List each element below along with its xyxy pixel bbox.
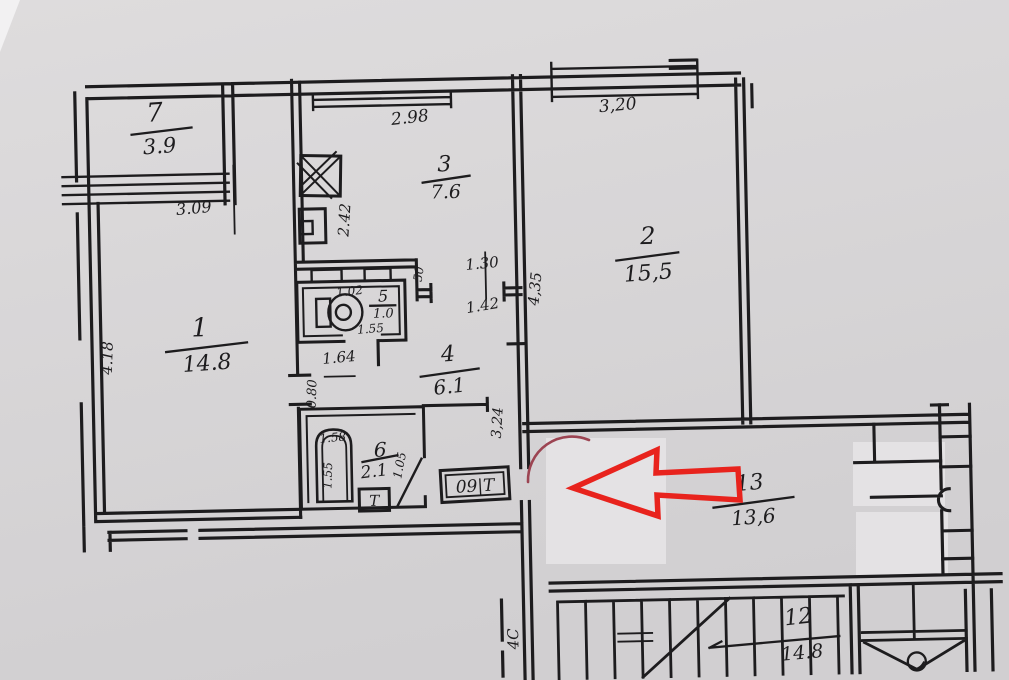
- scanned-floor-plan: Т 09|Т 7 3.9 3.09 1 14.8 4.18 3 7.6 2.98…: [0, 0, 1009, 680]
- room-hall-number: 4: [439, 342, 456, 368]
- dim-balcony-width: 3.09: [175, 197, 212, 219]
- dim-tub-length: 1.58: [319, 429, 347, 445]
- room-hall-area: 6.1: [432, 373, 466, 400]
- meter-box-label: 09|Т: [455, 475, 496, 497]
- floor-plan-canvas: Т 09|Т 7 3.9 3.09 1 14.8 4.18 3 7.6 2.98…: [0, 0, 1009, 680]
- room-kitchen-area: 7.6: [431, 181, 462, 204]
- room-living-area: 14.8: [182, 349, 233, 378]
- room-wc-area: 1.0: [373, 306, 394, 321]
- dim-niche: 50: [411, 265, 427, 283]
- room-balcony-area: 3.9: [142, 133, 177, 159]
- room-bathroom-area: 2.1: [359, 460, 389, 483]
- room-bedroom-area: 15,5: [623, 259, 674, 288]
- room-stairwell-area: 14.8: [780, 640, 824, 666]
- whiteout-patch: [856, 512, 948, 576]
- room-landing-area: 13,6: [730, 503, 776, 530]
- dim-bedroom-width: 3,20: [598, 94, 638, 117]
- dim-opening-kitchen-hall: 1.30: [465, 253, 500, 274]
- towel-rail-label: Т: [369, 492, 380, 510]
- room-kitchen-number: 3: [437, 152, 452, 177]
- dim-bedroom-depth: 4,35: [524, 271, 545, 307]
- dim-living-depth: 4.18: [98, 341, 117, 376]
- room-living-number: 1: [191, 313, 208, 343]
- room-wc-number: 5: [378, 286, 389, 305]
- dim-kitchen-depth: 2.42: [334, 203, 354, 239]
- dim-wc-width: 1.02: [336, 283, 364, 300]
- dim-tub-width: 1.55: [320, 462, 335, 489]
- stair-mark-label: 4С: [504, 628, 522, 651]
- room-bedroom-number: 2: [639, 222, 656, 250]
- room-stairwell-number: 12: [783, 603, 814, 631]
- room-balcony-number: 7: [145, 98, 164, 129]
- room-bathroom-number: 6: [374, 437, 387, 461]
- dim-kitchen-width: 2.98: [389, 106, 430, 130]
- dim-living-door: 0.80: [305, 379, 321, 408]
- dim-wc-depth: 1.55: [357, 321, 385, 337]
- dim-corridor-width: 1.64: [322, 347, 357, 368]
- dim-entry-depth: 3,24: [489, 407, 507, 439]
